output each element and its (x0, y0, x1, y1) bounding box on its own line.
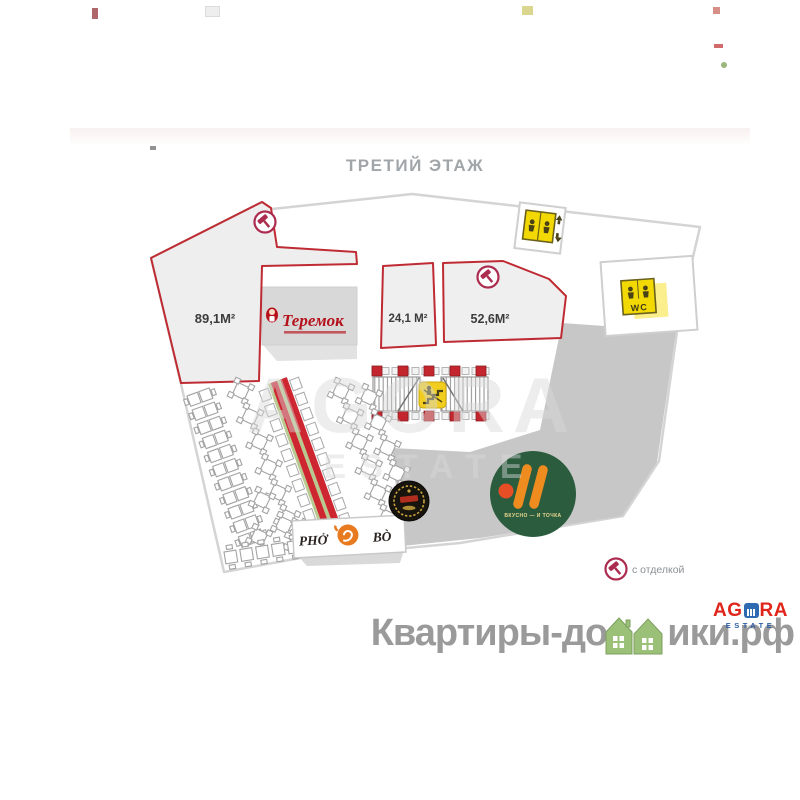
legend-finishing-label: с отделкой (632, 564, 685, 576)
pho-bo-name-left: PHỞ (299, 532, 330, 549)
teremok-tagline (284, 331, 346, 334)
agora-building-icon (744, 603, 759, 618)
pho-bo-unit: PHỞ BÒ (292, 515, 406, 558)
watermark-sub: ESTATE (323, 448, 536, 486)
artifact-speck (150, 146, 156, 150)
artifact-speck (92, 8, 98, 19)
unit-24-area: 24,1 М² (389, 313, 428, 325)
artifact-speck (522, 6, 533, 15)
wc-icon: WC (621, 279, 656, 315)
photo-haze (70, 128, 750, 146)
agora-logo-sub: ESTATE (726, 621, 775, 630)
artifact-speck (205, 6, 220, 17)
wc-room: WC (601, 256, 698, 336)
vkusno-name: ВКУСНО — И ТОЧКА (504, 513, 561, 519)
unit-52-area: 52,6М² (471, 312, 510, 326)
teremok-name: Теремок (282, 311, 344, 330)
legend-finishing: с отделкой (606, 559, 685, 580)
page-title: ТРЕТИЙ ЭТАЖ (30, 156, 800, 176)
agora-logo-left: AG (713, 601, 743, 620)
paint-roller-icon (478, 267, 499, 288)
artifact-speck (713, 7, 720, 14)
paint-roller-icon (255, 212, 276, 233)
floor-plan-page: ТРЕТИЙ ЭТАЖ (0, 0, 800, 800)
artifact-speck (721, 62, 727, 68)
teremok-shadow (263, 344, 357, 361)
artifact-speck (714, 44, 723, 48)
agora-logo-right: RA (760, 601, 788, 620)
agora-logo: AG RA ESTATE (713, 601, 788, 630)
unit-24 (381, 263, 436, 348)
unit-89-area: 89,1М² (195, 311, 236, 326)
floor-plan: Теремок 89,1М² 24,1 М² 52,6М² (0, 0, 800, 800)
coffee-badge-logo (389, 481, 429, 521)
elevator-room (514, 202, 565, 253)
wc-label: WC (630, 302, 648, 313)
pho-bo-name-right: BÒ (371, 529, 392, 545)
paint-roller-icon (606, 559, 627, 580)
houses-icon (604, 610, 670, 656)
site-watermark-prefix: Квартиры-до (371, 612, 608, 655)
teremok-mascot-icon (266, 308, 278, 323)
watermark-brand: AGORA (247, 361, 577, 449)
